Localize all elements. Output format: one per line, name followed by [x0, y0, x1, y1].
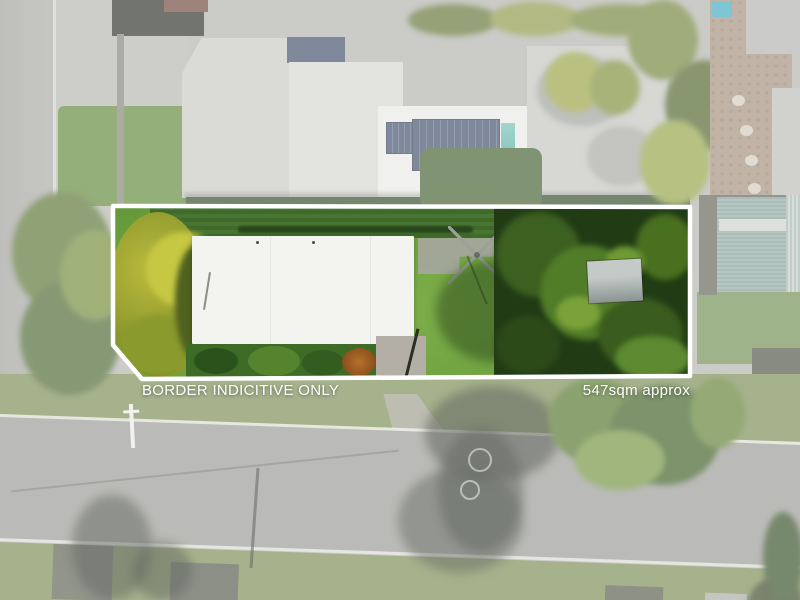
- fade-mask: [0, 0, 800, 600]
- property-boundary-outline: [113, 206, 690, 379]
- fade-overlay: [0, 0, 800, 600]
- aerial-photo: BORDER INDICITIVE ONLY 547sqm approx: [0, 0, 800, 600]
- area-label: 547sqm approx: [583, 382, 690, 399]
- border-disclaimer-label: BORDER INDICITIVE ONLY: [142, 382, 339, 399]
